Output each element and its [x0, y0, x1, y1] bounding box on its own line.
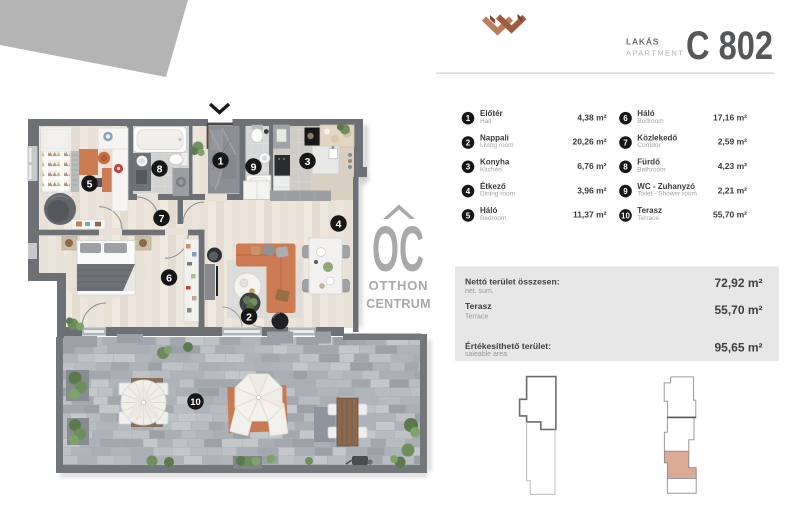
svg-text:OC: OC	[372, 213, 424, 285]
svg-text:55,70 m²: 55,70 m²	[714, 303, 762, 317]
svg-text:Corridor: Corridor	[637, 142, 661, 149]
svg-text:CENTRUM: CENTRUM	[366, 297, 431, 311]
svg-text:3: 3	[466, 163, 471, 172]
svg-text:95,65 m²: 95,65 m²	[714, 341, 762, 355]
svg-text:4: 4	[336, 218, 342, 230]
svg-text:1: 1	[466, 114, 471, 123]
svg-text:7: 7	[623, 138, 628, 147]
svg-text:10: 10	[621, 211, 630, 220]
svg-text:9: 9	[623, 187, 628, 196]
svg-text:5: 5	[87, 178, 93, 190]
svg-text:Terrace: Terrace	[637, 215, 659, 222]
svg-text:saleable area: saleable area	[465, 351, 507, 358]
svg-text:1: 1	[218, 155, 224, 167]
svg-text:2,21 m²: 2,21 m²	[718, 185, 747, 195]
svg-text:6: 6	[623, 114, 628, 123]
svg-text:Étkező: Étkező	[480, 182, 506, 191]
svg-text:Közlekedő: Közlekedő	[637, 133, 677, 142]
svg-text:10: 10	[190, 397, 201, 408]
svg-text:C 802: C 802	[686, 24, 773, 68]
svg-text:Kitchen: Kitchen	[480, 166, 502, 173]
svg-text:Dining room: Dining room	[480, 191, 515, 198]
svg-text:11,37 m²: 11,37 m²	[573, 210, 607, 220]
svg-text:Terasz: Terasz	[637, 206, 662, 215]
svg-text:3,96 m²: 3,96 m²	[577, 185, 606, 195]
svg-text:Toilet - Shower room: Toilet - Shower room	[637, 191, 697, 198]
svg-text:LAKÁS: LAKÁS	[626, 37, 659, 47]
svg-text:OTTHON: OTTHON	[369, 278, 429, 293]
svg-text:Nettó terület összesen:: Nettó terület összesen:	[465, 277, 560, 287]
svg-text:17,16 m²: 17,16 m²	[713, 112, 747, 122]
svg-text:Nappali: Nappali	[480, 133, 509, 142]
svg-text:20,26 m²: 20,26 m²	[572, 137, 606, 147]
svg-text:APARTMENT: APARTMENT	[626, 49, 684, 58]
svg-text:4,23 m²: 4,23 m²	[718, 161, 747, 171]
svg-text:WC - Zuhanyzó: WC - Zuhanyzó	[637, 182, 695, 191]
svg-text:7: 7	[159, 213, 165, 225]
svg-text:Háló: Háló	[637, 109, 654, 118]
svg-text:Bedroom: Bedroom	[637, 118, 663, 125]
svg-text:net. sum.: net. sum.	[465, 288, 494, 295]
svg-text:6,76 m²: 6,76 m²	[577, 161, 606, 171]
svg-text:2: 2	[466, 138, 471, 147]
svg-text:Értékesíthető terület:: Értékesíthető terület:	[465, 341, 551, 351]
svg-text:2,59 m²: 2,59 m²	[718, 137, 747, 147]
svg-text:2: 2	[246, 311, 252, 323]
svg-text:Bedroom: Bedroom	[480, 215, 506, 222]
svg-text:72,92 m²: 72,92 m²	[714, 276, 762, 290]
svg-text:Hall: Hall	[480, 118, 492, 125]
svg-text:9: 9	[251, 161, 257, 173]
svg-text:4,38 m²: 4,38 m²	[577, 112, 606, 122]
svg-text:Terasz: Terasz	[465, 301, 492, 311]
svg-text:8: 8	[157, 163, 163, 175]
svg-text:Bathroom: Bathroom	[637, 166, 665, 173]
svg-text:4: 4	[466, 187, 471, 196]
svg-text:3: 3	[305, 156, 311, 168]
svg-text:55,70 m²: 55,70 m²	[713, 210, 747, 220]
svg-text:Fürdő: Fürdő	[637, 158, 660, 167]
svg-text:Konyha: Konyha	[480, 158, 510, 167]
svg-text:6: 6	[166, 272, 172, 284]
svg-text:Terrace: Terrace	[465, 314, 488, 321]
svg-text:8: 8	[623, 163, 628, 172]
svg-text:5: 5	[466, 211, 471, 220]
svg-text:Előtér: Előtér	[480, 109, 503, 118]
svg-text:Living room: Living room	[480, 142, 514, 149]
svg-text:Háló: Háló	[480, 206, 497, 215]
